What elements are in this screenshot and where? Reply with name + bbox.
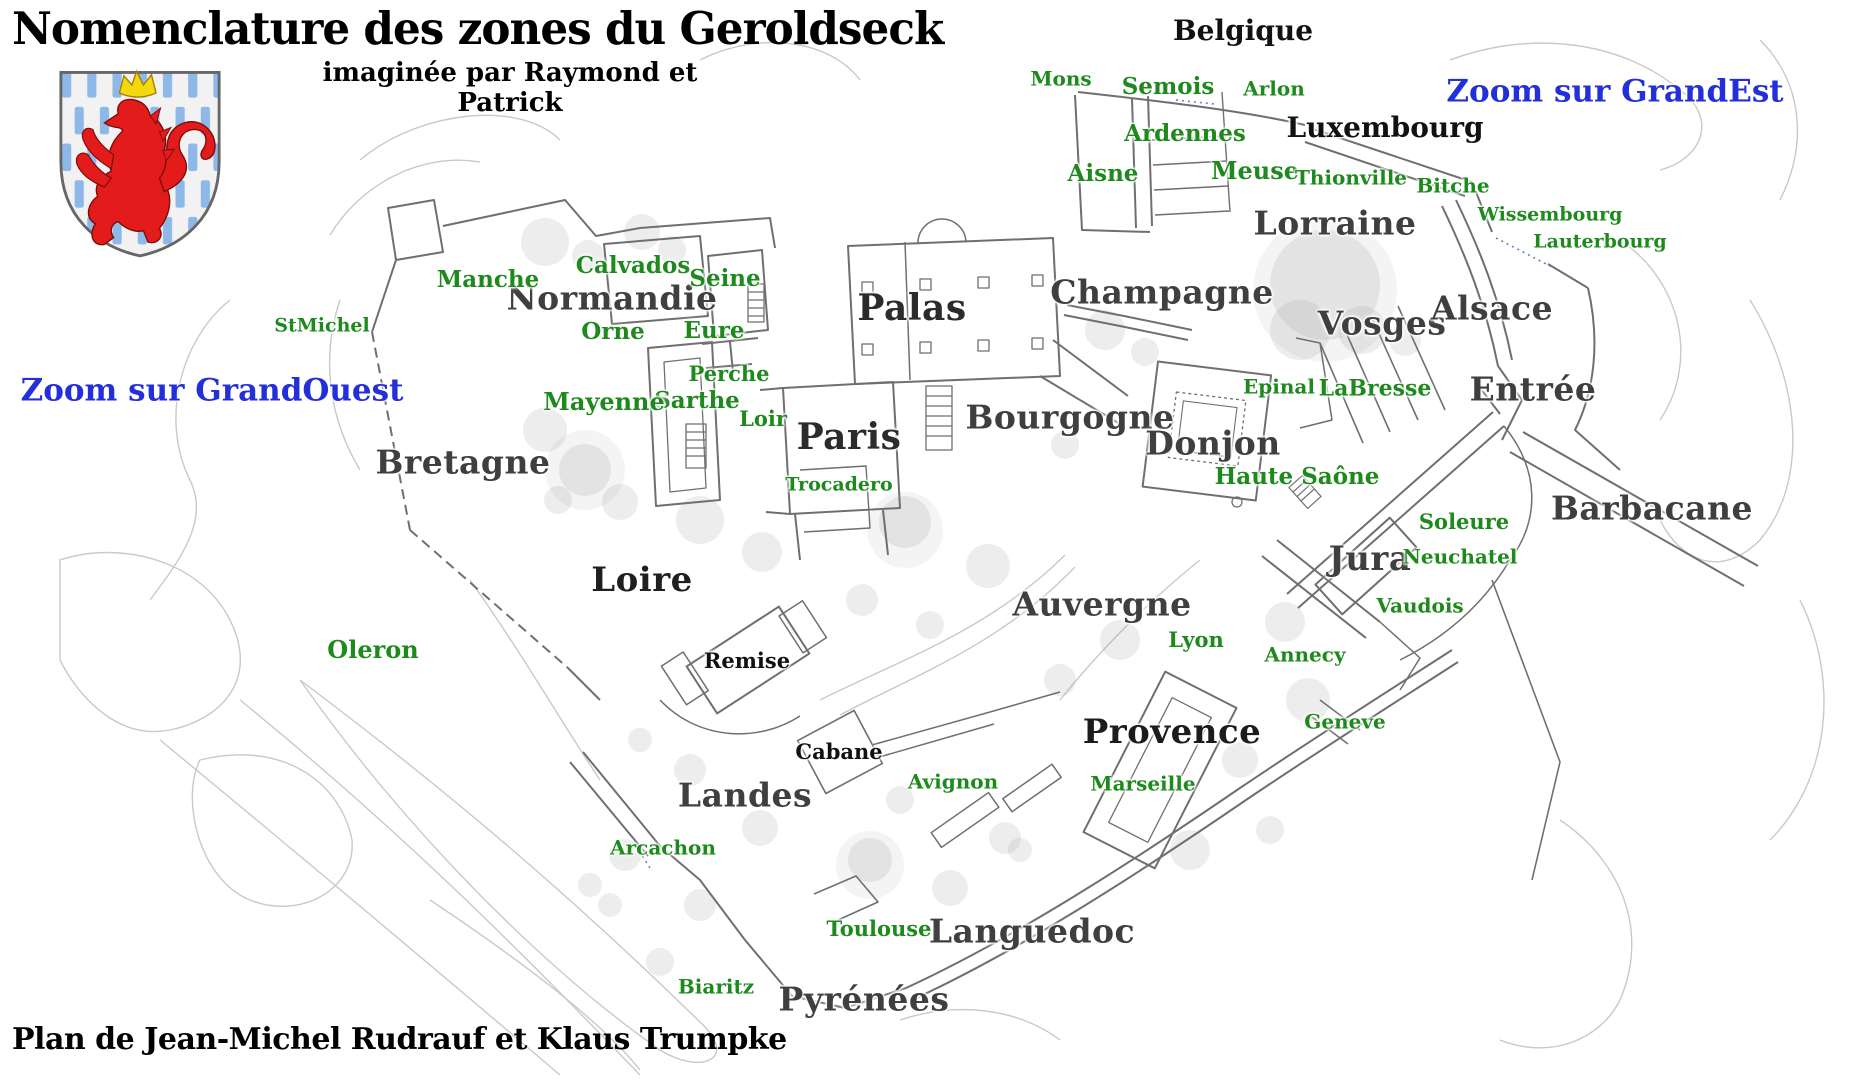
region-label-barbacane: Barbacane [1551, 489, 1753, 528]
region-label-champagne: Champagne [1050, 273, 1274, 312]
place-label-luxembourg: Luxembourg [1286, 111, 1483, 144]
region-label-loire: Loire [591, 560, 693, 600]
zone-label-mons: Mons [1030, 67, 1091, 91]
zone-label-avignon: Avignon [908, 770, 998, 794]
zone-label-eure: Eure [683, 317, 744, 344]
zone-label-mayenne: Mayenne [543, 387, 665, 416]
labels-layer: NormandiePalasParisBretagneLoireChampagn… [0, 0, 1860, 1080]
region-label-bourgogne: Bourgogne [966, 398, 1175, 437]
zone-label-soleure: Soleure [1419, 509, 1509, 534]
zone-label-oleron: Oleron [327, 635, 418, 664]
zone-label-biaritz: Biaritz [678, 975, 754, 999]
zone-label-thionville: Thionville [1295, 166, 1407, 190]
zone-label-aisne: Aisne [1068, 160, 1139, 187]
region-label-auvergne: Auvergne [1012, 585, 1191, 624]
zone-label-lauterbourg: Lauterbourg [1533, 231, 1666, 253]
zone-label-neuchatel: Neuchatel [1403, 545, 1518, 569]
region-label-bretagne: Bretagne [376, 443, 551, 482]
region-label-jura: Jura [1329, 539, 1412, 579]
zone-label-marseille: Marseille [1090, 772, 1195, 796]
zone-label-lyon: Lyon [1168, 627, 1224, 652]
region-label-entree: Entrée [1470, 370, 1597, 409]
region-label-pyrenees: Pyrénées [779, 980, 950, 1019]
zone-label-arlon: Arlon [1243, 77, 1305, 101]
place-label-belgique: Belgique [1173, 14, 1313, 47]
region-label-vosges: Vosges [1318, 304, 1447, 343]
region-label-donjon: Donjon [1145, 424, 1281, 463]
zone-label-meuse: Meuse [1211, 156, 1299, 185]
zone-label-epinal: Epinal [1243, 375, 1315, 399]
place-label-cabane: Cabane [795, 739, 882, 764]
zone-label-trocadero: Trocadero [785, 474, 892, 496]
place-label-remise: Remise [704, 648, 790, 673]
zone-label-ardennes: Ardennes [1124, 120, 1246, 147]
region-label-landes: Landes [678, 776, 812, 815]
link-zoom-sur-grandest[interactable]: Zoom sur GrandEst [1446, 73, 1783, 109]
zone-label-perche: Perche [688, 361, 769, 386]
zone-label-bitche: Bitche [1416, 174, 1489, 198]
zone-label-loir: Loir [739, 406, 787, 431]
region-label-alsace: Alsace [1431, 289, 1553, 328]
zone-label-calvados: Calvados [576, 252, 691, 279]
region-label-provence: Provence [1083, 712, 1262, 752]
zone-label-toulouse: Toulouse [827, 916, 932, 941]
region-label-palas: Palas [857, 287, 966, 329]
zone-label-arcachon: Arcachon [610, 836, 716, 860]
zone-label-wissembourg: Wissembourg [1478, 204, 1623, 226]
castle-map-page: Nomenclature des zones du Geroldseck ima… [0, 0, 1860, 1080]
zone-label-annecy: Annecy [1264, 643, 1345, 667]
zone-label-geneve: Geneve [1304, 710, 1385, 734]
zone-label-manche: Manche [437, 266, 539, 293]
zone-label-vaudois: Vaudois [1376, 594, 1463, 618]
zone-label-stmichel: StMichel [274, 315, 369, 337]
region-label-languedoc: Languedoc [929, 912, 1135, 951]
region-label-lorraine: Lorraine [1254, 204, 1417, 243]
zone-label-sarthe: Sarthe [654, 387, 740, 414]
region-label-paris: Paris [797, 416, 902, 458]
zone-label-seine: Seine [689, 265, 760, 292]
zone-label-orne: Orne [581, 318, 645, 345]
link-zoom-sur-grandouest[interactable]: Zoom sur GrandOuest [21, 372, 404, 408]
zone-label-haute-saone: Haute Saône [1215, 463, 1380, 490]
zone-label-semois: Semois [1122, 73, 1215, 100]
zone-label-labresse: LaBresse [1319, 375, 1432, 401]
